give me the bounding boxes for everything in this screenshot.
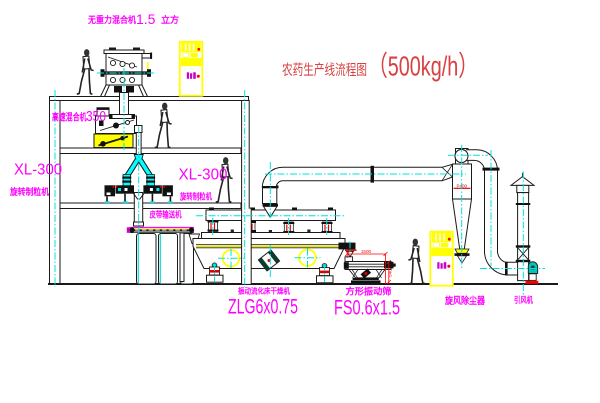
svg-text:旋风除尘器: 旋风除尘器 — [444, 295, 485, 307]
svg-text:XL-300: XL-300 — [14, 162, 62, 179]
svg-text:方形振动筛: 方形振动筛 — [346, 286, 392, 297]
svg-text:XL-300: XL-300 — [179, 167, 228, 184]
svg-text:皮带输送机: 皮带输送机 — [149, 210, 182, 220]
svg-text:立方: 立方 — [161, 14, 179, 25]
svg-text:540: 540 — [388, 269, 393, 277]
svg-text:1500: 1500 — [361, 249, 372, 254]
svg-text:1.5: 1.5 — [136, 11, 156, 27]
svg-text:旋转制粒机: 旋转制粒机 — [9, 186, 49, 197]
svg-text:高速混合机: 高速混合机 — [52, 112, 87, 124]
svg-text:农药生产线流程图: 农药生产线流程图 — [282, 62, 367, 79]
svg-text:（500kg/h）: （500kg/h） — [368, 51, 478, 82]
svg-text:350: 350 — [86, 109, 106, 125]
svg-text:FS0.6x1.5: FS0.6x1.5 — [334, 297, 400, 320]
svg-text:无重力混合机: 无重力混合机 — [87, 14, 136, 25]
svg-text:引风机: 引风机 — [514, 295, 533, 305]
svg-text:振动流化床干燥机: 振动流化床干燥机 — [238, 286, 290, 296]
svg-text:ZLG6x0.75: ZLG6x0.75 — [228, 296, 298, 319]
svg-text:旋转制粒机: 旋转制粒机 — [179, 192, 212, 202]
